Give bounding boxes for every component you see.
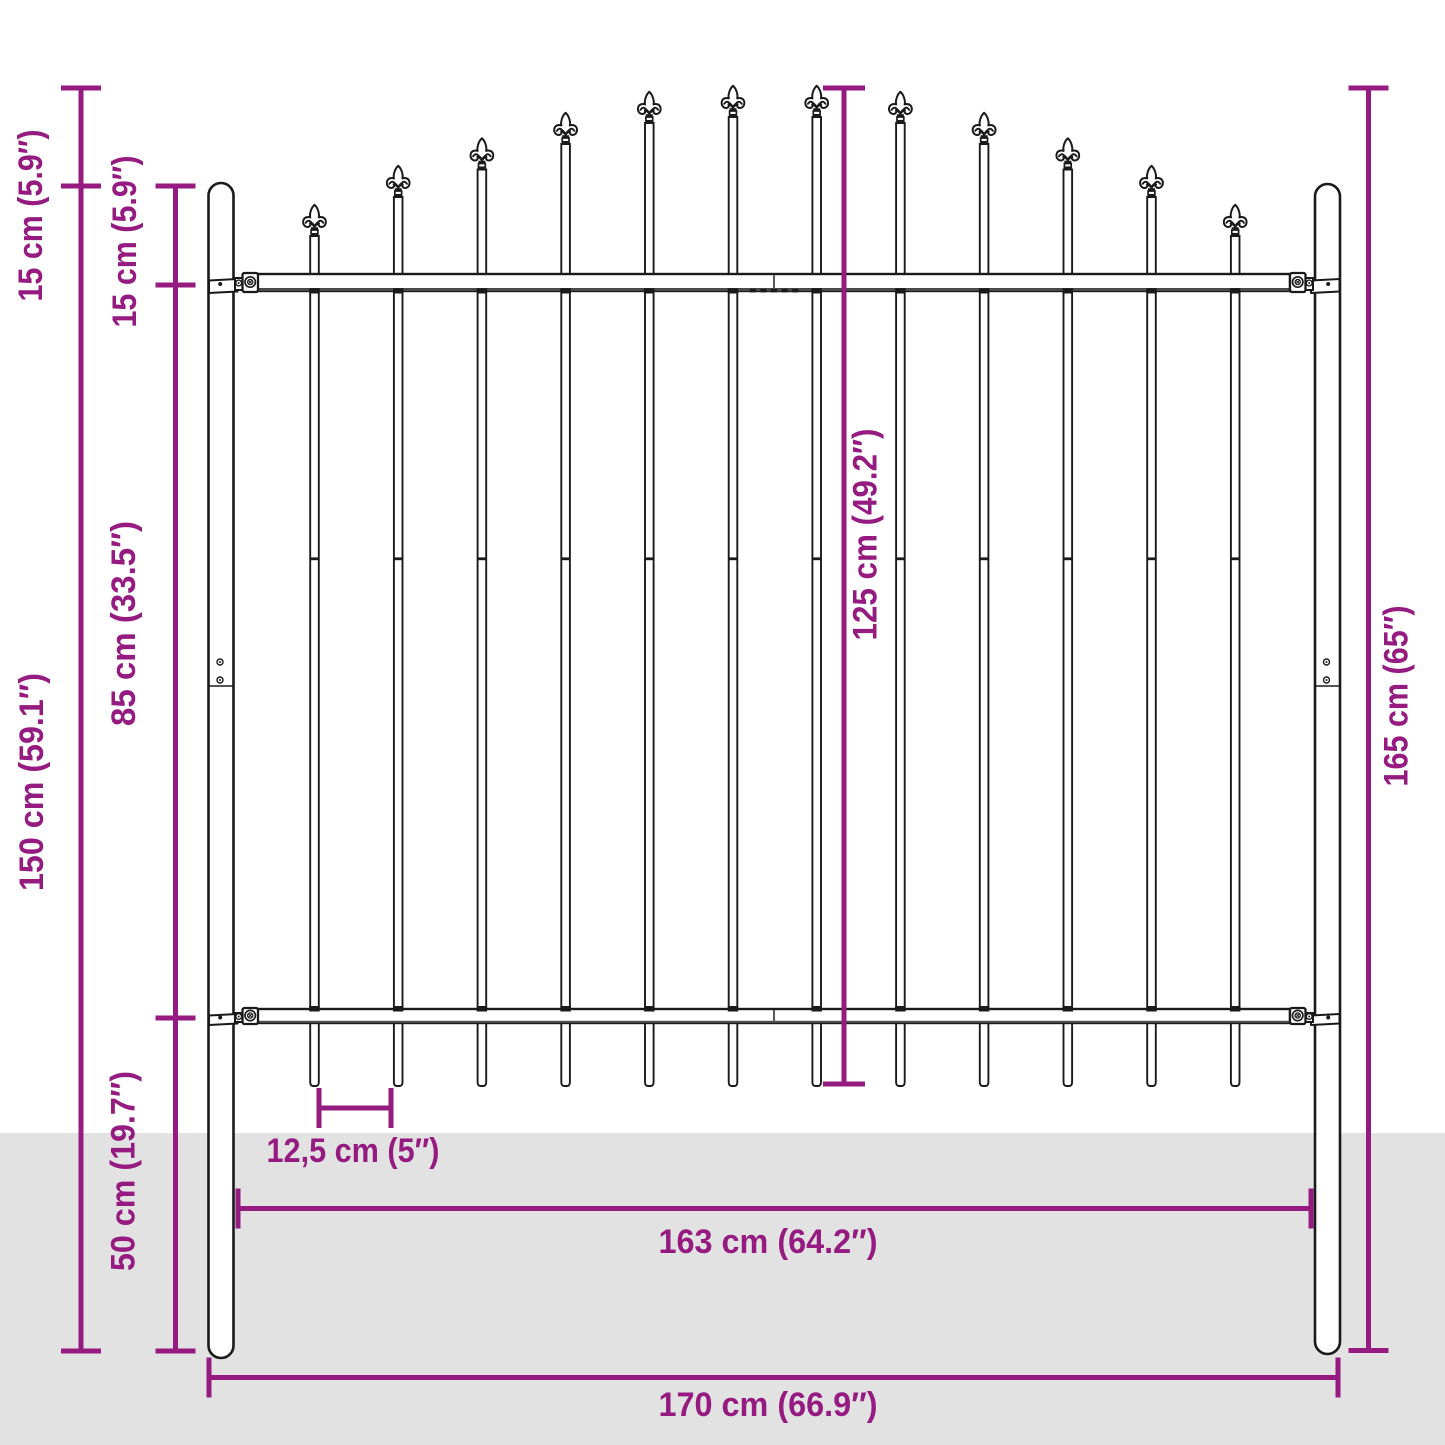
svg-text:12,5 cm (5″): 12,5 cm (5″) [267, 1132, 440, 1170]
svg-text:163 cm (64.2″): 163 cm (64.2″) [659, 1223, 878, 1261]
svg-text:85 cm (33.5″): 85 cm (33.5″) [105, 521, 143, 726]
svg-text:50 cm (19.7″): 50 cm (19.7″) [105, 1071, 143, 1271]
svg-text:15 cm (5.9″): 15 cm (5.9″) [106, 156, 144, 328]
svg-text:170 cm (66.9″): 170 cm (66.9″) [659, 1386, 878, 1424]
svg-text:150 cm (59.1″): 150 cm (59.1″) [13, 673, 51, 891]
svg-text:15 cm (5.9″): 15 cm (5.9″) [12, 130, 50, 302]
svg-text:165 cm (65″): 165 cm (65″) [1378, 606, 1416, 787]
svg-text:125 cm (49.2″): 125 cm (49.2″) [847, 429, 885, 641]
